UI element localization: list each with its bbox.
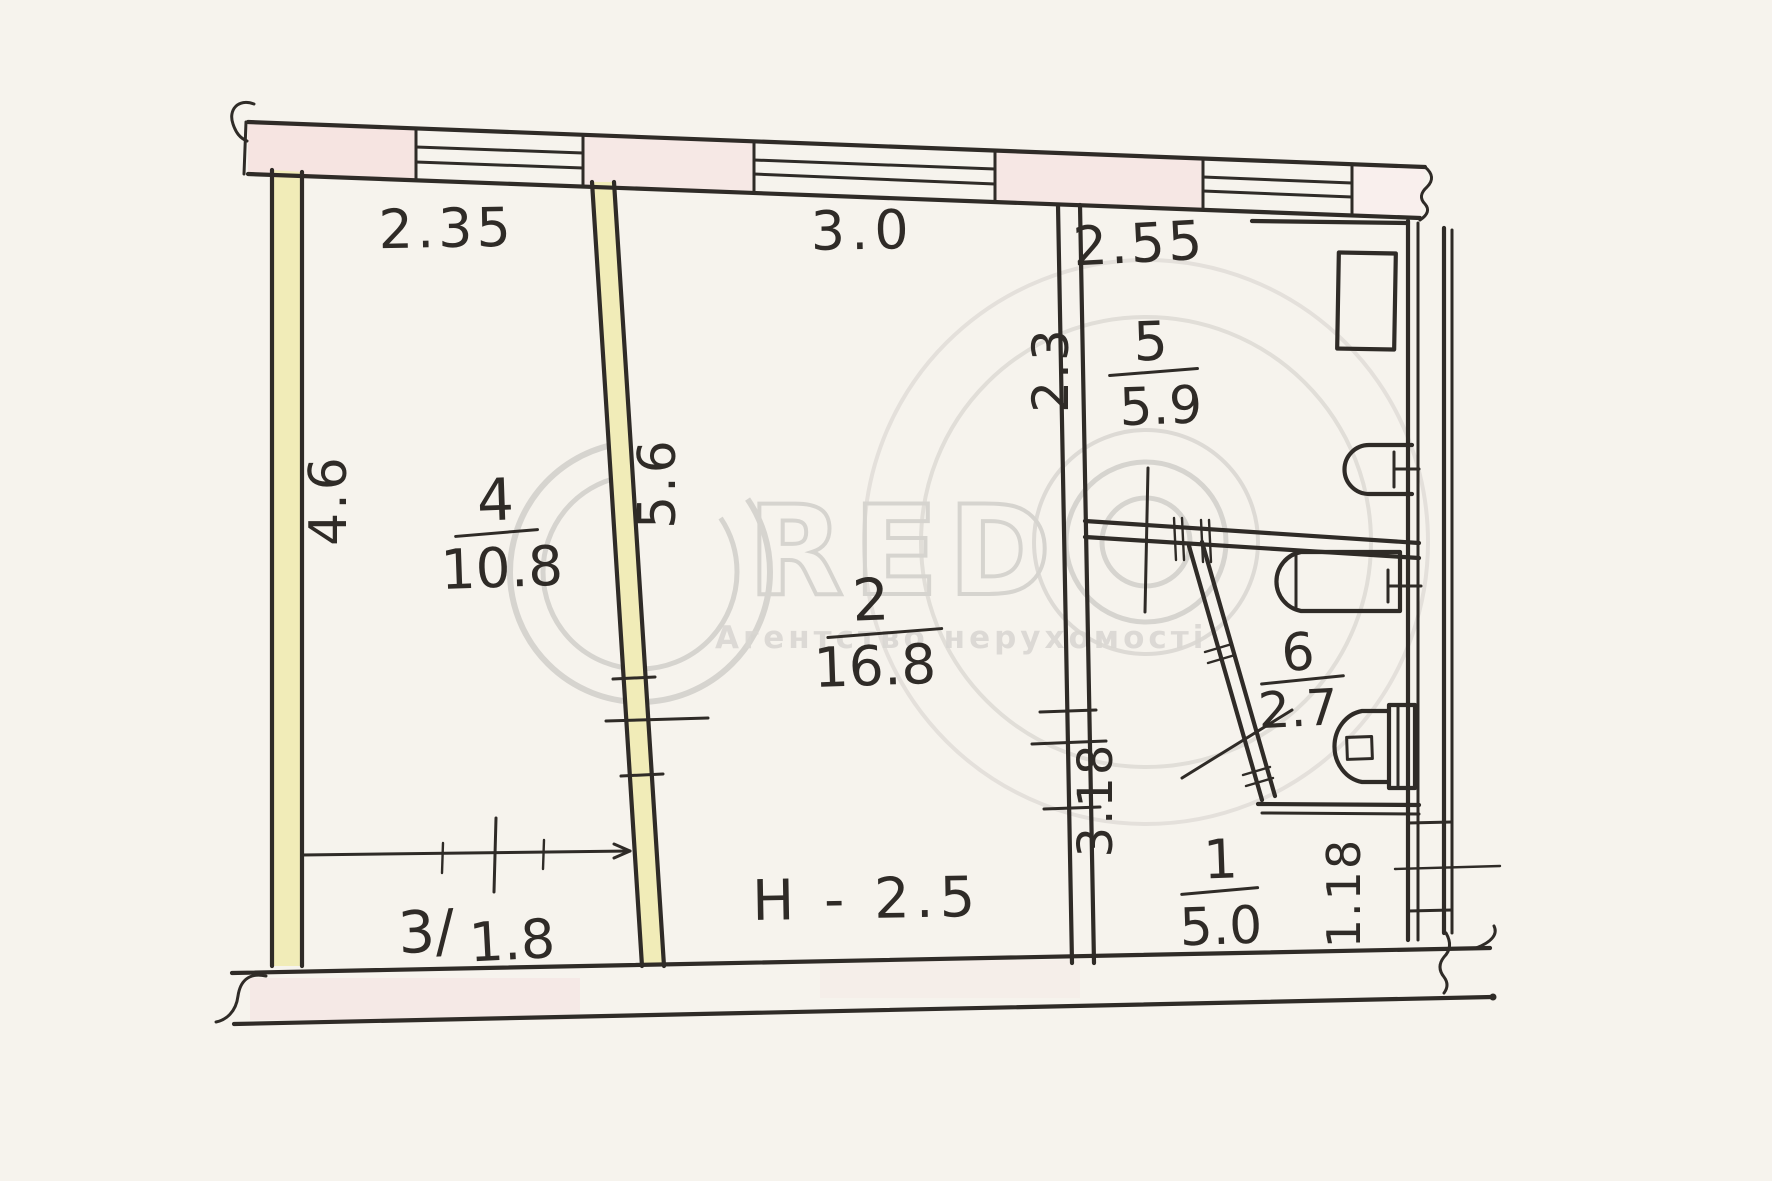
door-leaf-line (1145, 468, 1148, 612)
window-room5 (1203, 177, 1352, 197)
dim-room5-width: 2.55 (1071, 209, 1206, 279)
room-area: 2.7 (1257, 678, 1339, 740)
dim-room4-width: 2.35 (378, 196, 515, 261)
scanned-floor-plan-page: RED Агентство нерухомості (0, 0, 1772, 1181)
floor-plan-canvas: RED Агентство нерухомості (0, 0, 1772, 1181)
mid-wall-fill (592, 182, 664, 966)
window-room2 (754, 160, 995, 184)
room-area: 16.8 (813, 632, 938, 700)
dim-room2-depth: 5.6 (628, 437, 688, 529)
door-jamb-tick (1209, 520, 1211, 562)
divider-long-tick (494, 818, 496, 892)
wall-hatch-rung (1408, 822, 1452, 823)
dim-niche-width: 1.18 (1317, 838, 1371, 948)
wall-break-mark (1440, 933, 1450, 993)
divider-tick (543, 840, 544, 869)
kitchen-appliance-symbol (1337, 253, 1396, 350)
room-label-6: 6 2.7 (1254, 621, 1347, 740)
toilet-bowl-detail (1347, 737, 1373, 760)
pier-fill (1352, 164, 1425, 218)
dim-room5-depth: 2.3 (1022, 327, 1080, 413)
watermark-letters-red: RED (748, 480, 1061, 624)
room-number: 6 (1280, 622, 1316, 684)
room-number: 5 (1132, 310, 1169, 374)
door-jamb-tick (621, 774, 663, 776)
room-label-5: 5 5.9 (1107, 308, 1203, 438)
toilet-tank-symbol (1389, 705, 1415, 788)
divider-tick (442, 843, 443, 873)
door-jamb-tick (613, 677, 655, 679)
door-leaf-line (606, 718, 708, 721)
room-area: 5.0 (1179, 896, 1264, 959)
top-stub-wall (1252, 221, 1408, 223)
dim-hall-depth: 3.18 (1068, 743, 1124, 858)
room-area: 5.9 (1118, 375, 1203, 438)
room3-divider (302, 818, 630, 892)
watermark-tagline: Агентство нерухомості (715, 620, 1207, 656)
wall-break-mark (1476, 926, 1495, 948)
scan-smudge (820, 960, 1080, 998)
wall-6-1-upper (1258, 804, 1419, 805)
room-area: 1.8 (468, 907, 557, 974)
dim-room4-depth: 4.6 (299, 454, 359, 546)
ceiling-height-label: H - 2.5 (752, 865, 982, 934)
room-label-3: 3/ 1.8 (396, 891, 556, 978)
top-wall-outer-edge (248, 122, 1425, 167)
wall-hatch-rung (1408, 910, 1452, 911)
dimension-extension-line (1395, 866, 1500, 869)
left-wall-fill (272, 170, 302, 966)
door-jamb-tick (1040, 710, 1096, 712)
wall-end-dot (1490, 994, 1497, 1001)
divider-line (302, 851, 630, 855)
dim-room2-width: 3.0 (810, 198, 915, 263)
room-number: 3/ (396, 896, 456, 967)
room-area: 10.8 (439, 534, 564, 602)
window-room4 (416, 147, 583, 168)
wall-6-1-lower (1262, 813, 1419, 814)
room-number: 2 (851, 565, 890, 634)
room-label-1: 1 5.0 (1176, 827, 1263, 959)
room-number: 1 (1202, 827, 1239, 891)
top-wall-left-cap (244, 122, 246, 174)
door-jamb-tick (1174, 518, 1176, 560)
room-number: 4 (476, 465, 515, 534)
scan-smudge (250, 978, 580, 1020)
